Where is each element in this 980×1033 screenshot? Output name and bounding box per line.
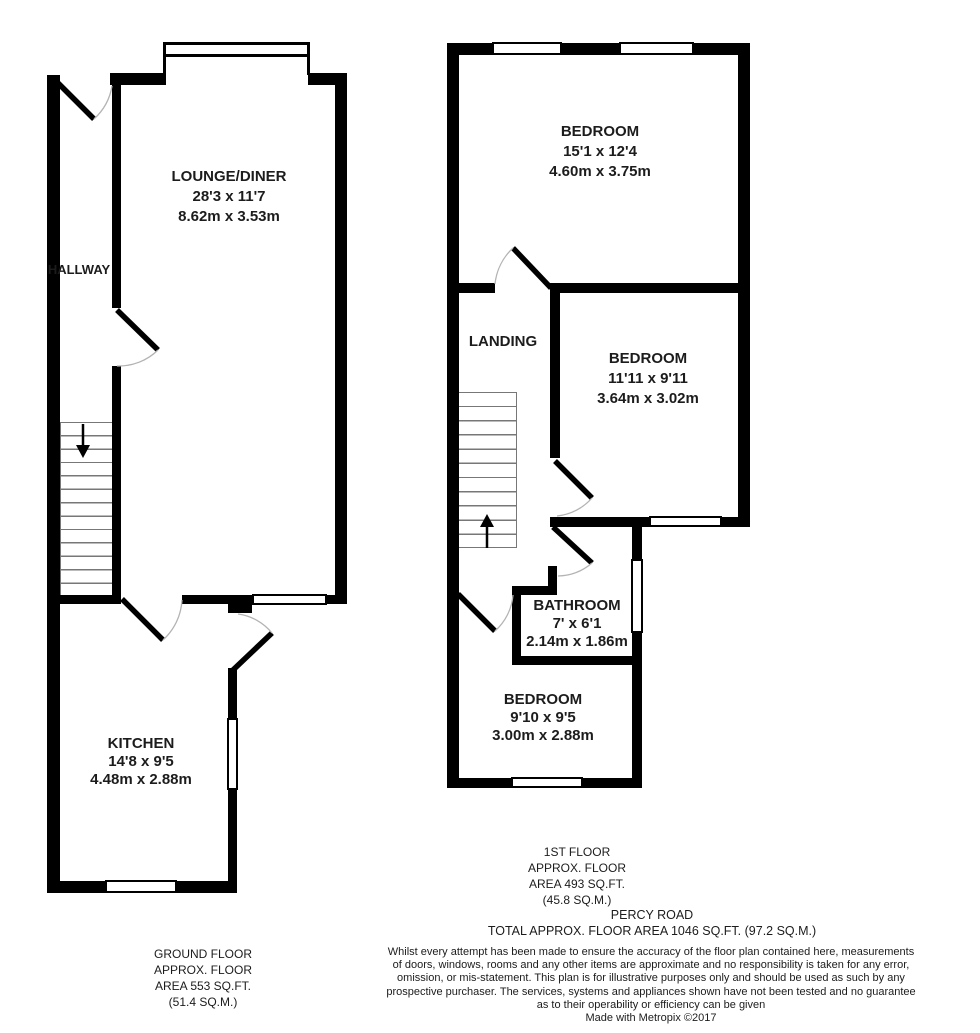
window-bedroom1-left: [492, 42, 562, 55]
wall-hallway-kitchen: [47, 595, 112, 604]
room-label-bathroom: BATHROOM 7' x 6'1 2.14m x 1.86m: [526, 597, 628, 651]
room-dims-imperial: 14'8 x 9'5: [90, 753, 192, 771]
bathroom-door-leaf: [553, 527, 592, 563]
caption-line: GROUND FLOOR: [154, 946, 252, 962]
ground-floor-caption: GROUND FLOOR APPROX. FLOOR AREA 553 SQ.F…: [154, 946, 252, 1010]
disclaimer-line: of doors, windows, rooms and any other i…: [386, 959, 915, 972]
wall-bathroom-stub: [548, 566, 557, 588]
kitchen-back-door-leaf: [233, 633, 272, 670]
room-label-bedroom3: BEDROOM 9'10 x 9'5 3.00m x 2.88m: [492, 691, 594, 745]
window-bedroom1-right: [619, 42, 694, 55]
caption-line: AREA 553 SQ.FT.: [154, 978, 252, 994]
room-name: KITCHEN: [90, 735, 192, 753]
room-label-kitchen: KITCHEN 14'8 x 9'5 4.48m x 2.88m: [90, 735, 192, 789]
room-dims-imperial: 28'3 x 11'7: [171, 187, 286, 207]
room-label-hallway: HALLWAY: [48, 262, 110, 277]
bedroom2-door-arc: [557, 498, 592, 516]
room-name: BATHROOM: [526, 597, 628, 615]
window-bathroom-side: [631, 559, 643, 633]
room-name: BEDROOM: [549, 122, 651, 142]
room-dims-metric: 3.64m x 3.02m: [597, 389, 699, 409]
window-bedroom3-rear: [511, 777, 583, 788]
window-kitchen-side: [227, 718, 238, 790]
wall-rear-corner: [327, 595, 347, 604]
room-label-bedroom2: BEDROOM 11'11 x 9'11 3.64m x 3.02m: [597, 349, 699, 409]
disclaimer-line: as to their operability or efficiency ca…: [386, 999, 915, 1012]
lounge-door-leaf: [117, 310, 158, 350]
bedroom1-door-leaf: [513, 248, 551, 288]
caption-line: (45.8 SQ.M.): [528, 892, 626, 908]
window-bedroom2-rear: [649, 516, 722, 527]
address-line: PERCY ROAD: [611, 908, 693, 922]
bay-window-lounge: [163, 42, 310, 57]
wall-gf-right: [335, 73, 347, 604]
disclaimer-line: omission, or mis-statement. This plan is…: [386, 972, 915, 985]
wall-kitchen-right-upper: [228, 668, 237, 720]
room-name: BEDROOM: [492, 691, 594, 709]
bay-jamb-left: [163, 57, 166, 75]
wall-hallway-lounge-lower: [112, 366, 121, 604]
room-dims-metric: 8.62m x 3.53m: [171, 207, 286, 227]
room-name: BEDROOM: [597, 349, 699, 369]
lounge-door-arc: [117, 350, 158, 366]
stairs-ground-floor: [60, 422, 113, 597]
first-floor-caption: 1ST FLOOR APPROX. FLOOR AREA 493 SQ.FT. …: [528, 844, 626, 908]
bedroom3-door-leaf: [458, 594, 495, 631]
wall-bedroom1-bottom-left: [447, 283, 495, 293]
room-dims-imperial: 11'11 x 9'11: [597, 369, 699, 389]
floorplan-canvas: HALLWAY LOUNGE/DINER 28'3 x 11'7 8.62m x…: [0, 0, 980, 1033]
room-name: LOUNGE/DINER: [171, 167, 286, 187]
caption-line: (51.4 SQ.M.): [154, 994, 252, 1010]
kitchen-back-door-arc: [238, 614, 272, 633]
front-door-arc: [94, 86, 112, 119]
room-label-lounge: LOUNGE/DINER 28'3 x 11'7 8.62m x 3.53m: [171, 167, 286, 227]
room-dims-imperial: 7' x 6'1: [526, 615, 628, 633]
bedroom3-door-arc: [495, 595, 513, 631]
wall-bedroom1-bottom-right: [550, 283, 750, 293]
total-area-line: TOTAL APPROX. FLOOR AREA 1046 SQ.FT. (97…: [488, 924, 816, 938]
disclaimer-text: Whilst every attempt has been made to en…: [386, 946, 915, 1025]
wall-rear-pier: [228, 595, 252, 613]
room-label-bedroom1: BEDROOM 15'1 x 12'4 4.60m x 3.75m: [549, 122, 651, 182]
lounge-kitchen-door-leaf: [122, 599, 163, 640]
wall-gf-top-left: [110, 73, 166, 85]
caption-line: 1ST FLOOR: [528, 844, 626, 860]
wall-ff-back-right: [632, 517, 642, 788]
wall-lounge-rear: [182, 595, 228, 604]
room-dims-imperial: 9'10 x 9'5: [492, 709, 594, 727]
window-lounge-rear: [252, 594, 327, 605]
stairs-first-floor: [457, 392, 517, 548]
room-dims-metric: 2.14m x 1.86m: [526, 633, 628, 651]
bathroom-door-arc: [558, 563, 592, 576]
disclaimer-line: prospective purchaser. The services, sys…: [386, 986, 915, 999]
wall-ff-left: [447, 43, 459, 788]
window-kitchen-rear: [105, 880, 177, 893]
caption-line: AREA 493 SQ.FT.: [528, 876, 626, 892]
front-door-leaf: [55, 80, 94, 119]
wall-bathroom-bottom: [512, 656, 642, 665]
room-dims-metric: 3.00m x 2.88m: [492, 727, 594, 745]
room-label-landing: LANDING: [469, 333, 537, 350]
bedroom2-door-leaf: [555, 461, 592, 498]
lounge-kitchen-door-arc: [163, 600, 182, 640]
caption-line: APPROX. FLOOR: [528, 860, 626, 876]
wall-landing-bedroom2: [550, 283, 560, 458]
bedroom1-door-arc: [495, 248, 513, 284]
caption-line: APPROX. FLOOR: [154, 962, 252, 978]
wall-bathroom-left: [512, 586, 521, 665]
wall-kitchen-right-lower: [228, 788, 237, 893]
room-dims-imperial: 15'1 x 12'4: [549, 142, 651, 162]
wall-hallway-lounge-upper: [112, 85, 121, 308]
room-dims-metric: 4.60m x 3.75m: [549, 162, 651, 182]
wall-gf-left: [47, 75, 60, 893]
metropix-credit: Made with Metropix ©2017: [386, 1012, 915, 1025]
room-dims-metric: 4.48m x 2.88m: [90, 771, 192, 789]
disclaimer-line: Whilst every attempt has been made to en…: [386, 946, 915, 959]
